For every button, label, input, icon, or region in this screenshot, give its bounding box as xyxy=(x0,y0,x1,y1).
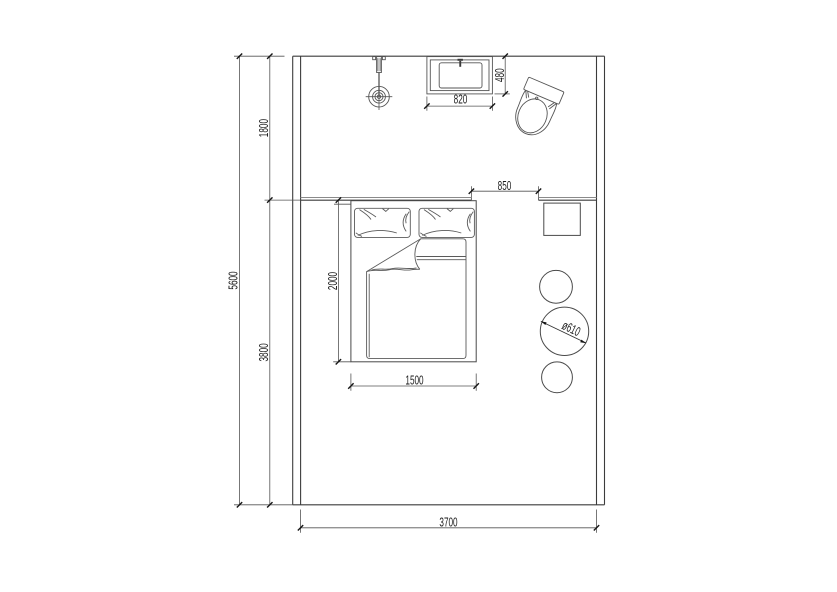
svg-text:480: 480 xyxy=(493,68,507,82)
svg-text:1500: 1500 xyxy=(405,374,423,388)
svg-text:5600: 5600 xyxy=(227,271,241,289)
svg-text:3800: 3800 xyxy=(257,343,271,361)
svg-text:3700: 3700 xyxy=(439,516,457,530)
svg-text:1800: 1800 xyxy=(257,119,271,137)
svg-text:850: 850 xyxy=(498,179,512,193)
svg-text:820: 820 xyxy=(454,93,468,107)
svg-text:2000: 2000 xyxy=(326,272,340,290)
